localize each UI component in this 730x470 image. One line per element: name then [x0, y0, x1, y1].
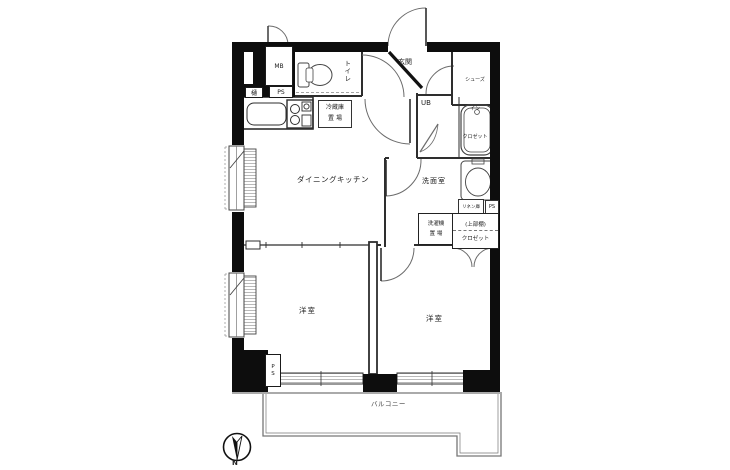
- room2-door: [381, 248, 414, 281]
- balcony-window-1: [280, 371, 363, 386]
- balcony-window-2: [397, 371, 467, 386]
- compass-north-label: N: [232, 459, 238, 467]
- pipe-space-mid-box: PS: [485, 200, 499, 214]
- closet-label: クロゼット: [462, 231, 490, 245]
- wall-bottom-left-corner: [232, 350, 268, 392]
- closet-doors: [453, 248, 493, 267]
- wall-left-mid: [232, 212, 244, 272]
- meter-box-label: MB: [274, 63, 283, 70]
- meter-box: MB: [265, 46, 293, 86]
- linen-label: リネン庫: [462, 204, 480, 210]
- floor-plan-linework: [0, 0, 730, 470]
- pipe-space-top-box: PS: [269, 86, 293, 98]
- refrigerator-label-2: 置 場: [328, 114, 342, 125]
- shoes-closet-line1: シューズ: [453, 76, 497, 86]
- closet-upper-shelf-label: (上部棚): [453, 218, 498, 231]
- sliding-partition: [244, 241, 369, 249]
- left-window-2: [225, 273, 256, 337]
- closet-box: (上部棚) クロゼット: [452, 213, 499, 249]
- wall-top-mid: [289, 42, 388, 52]
- dining-kitchen-label: ダイニングキッチン: [297, 175, 369, 184]
- left-window-1: [225, 146, 256, 210]
- linen-box: リネン庫: [458, 199, 484, 214]
- wall-bottom-right-corner: [463, 370, 500, 392]
- kitchen-hall-door: [365, 99, 410, 144]
- washer-space-box: 洗濯機 置 場: [418, 213, 454, 245]
- toilet-label: トイレ: [342, 60, 350, 83]
- gutter-box: 樋: [245, 87, 263, 98]
- unit-bath-label: UB: [421, 99, 431, 107]
- shoes-closet-door: [426, 66, 454, 94]
- western-room-1-label: 洋室: [299, 306, 316, 315]
- shoes-closet-label: シューズ イン クロゼット: [453, 57, 497, 162]
- floor-plan: MB 樋 PS 冷蔵庫 置 場 リネン庫 PS 洗濯機 置 場 (上部棚) クロ…: [0, 0, 730, 470]
- washroom-door: [386, 159, 421, 196]
- shoes-closet-line3: クロゼット: [453, 133, 497, 143]
- pipe-space-bottom-box: PS: [265, 354, 281, 387]
- entrance-label: 玄関: [398, 58, 412, 66]
- compass-icon: [224, 434, 251, 461]
- refrigerator-space-box: 冷蔵庫 置 場: [318, 100, 352, 128]
- wall-bottom-mid: [363, 374, 397, 392]
- washer-label-2: 置 場: [430, 229, 443, 239]
- gutter-label: 樋: [251, 88, 257, 97]
- bath-folding-door: [420, 124, 438, 152]
- entrance-door: [388, 8, 426, 46]
- wall-left-upper: [232, 52, 244, 145]
- toilet-fixture: [298, 63, 332, 87]
- kitchen-counter: [237, 97, 313, 129]
- pipe-space-mid-label: PS: [489, 204, 495, 210]
- pipe-space-bottom-label: PS: [270, 364, 276, 378]
- balcony-label: バルコニー: [371, 401, 406, 409]
- pipe-space-top-label: PS: [277, 89, 284, 96]
- shoes-closet-line2: イン: [453, 105, 497, 115]
- washroom-label: 洗面室: [422, 177, 446, 185]
- refrigerator-label-1: 冷蔵庫: [326, 103, 344, 114]
- wall-top-right: [427, 42, 500, 52]
- western-room-2-label: 洋室: [426, 314, 443, 323]
- washer-label-1: 洗濯機: [428, 219, 445, 229]
- room-partition-wall: [369, 242, 377, 374]
